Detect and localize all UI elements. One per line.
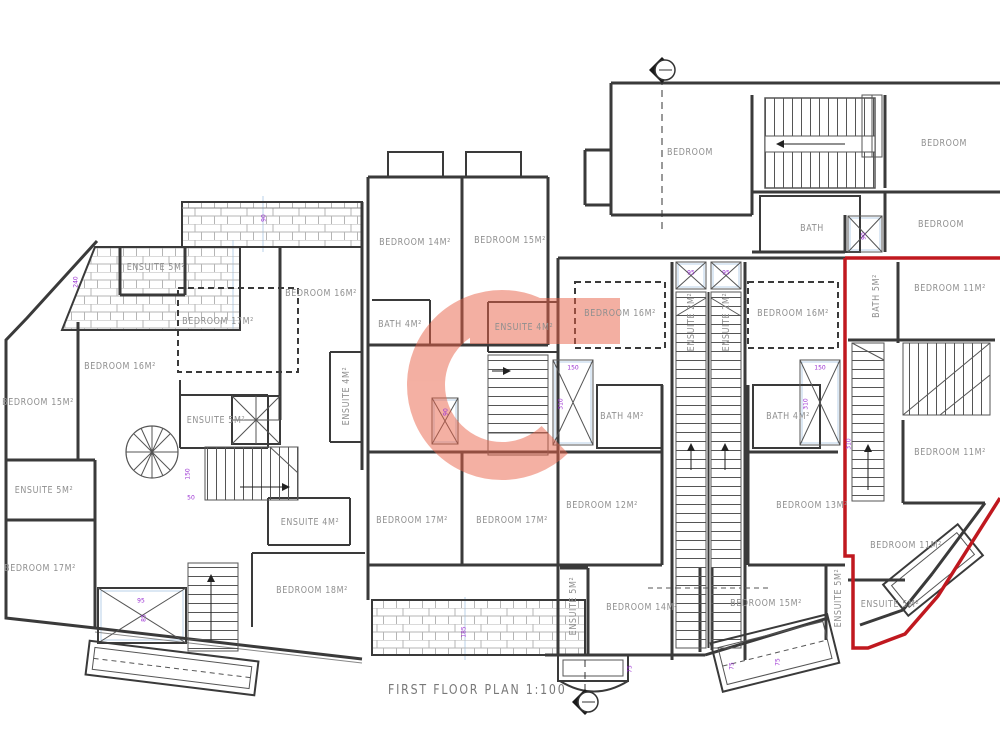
top-right-block [585, 83, 1000, 340]
dimension-label: 95 [687, 270, 695, 277]
room-label: BEDROOM [921, 138, 967, 149]
room-label: BEDROOM 11M² [914, 283, 986, 294]
room-label: ENSUITE 5M² [187, 415, 246, 426]
room-label: ENSUITE 4M² [281, 517, 340, 528]
floor-plan-canvas: BEDROOMBEDROOMBEDROOMBATHBATH 5M²BEDROOM… [0, 0, 1000, 750]
room-label: BATH 4M² [766, 411, 810, 422]
dimension-label: 75 [627, 665, 634, 673]
room-label: ENSUITE 2M² [721, 293, 732, 352]
room-label: ENSUITE 5M² [568, 577, 579, 636]
dimension-label: 150 [185, 468, 192, 479]
room-label: BEDROOM 13M² [776, 500, 848, 511]
section-marker-icon [572, 689, 598, 715]
room-label: BEDROOM [918, 219, 964, 230]
room-label: BEDROOM 14M² [379, 237, 451, 248]
dimension-label: 310 [846, 438, 853, 449]
dimension-label: 150 [567, 365, 578, 372]
room-label: ENSUITE 4M² [495, 322, 554, 333]
dimension-label: 90 [443, 408, 450, 416]
dimension-label: 85 [141, 614, 148, 622]
room-label: BEDROOM 16M² [84, 361, 156, 372]
section-marker-icon [649, 57, 675, 83]
room-label: BEDROOM 17M² [182, 316, 254, 327]
dimension-label: 185 [461, 626, 468, 637]
room-label: BEDROOM 15M² [474, 235, 546, 246]
dimension-label: 90 [861, 232, 868, 240]
room-label: ENSUITE 4M² [341, 367, 352, 426]
room-label: BEDROOM 16M² [757, 308, 829, 319]
room-label: ENSUITE 5M² [15, 485, 74, 496]
plan-title: FIRST FLOOR PLAN 1:100 [388, 682, 567, 698]
room-label: BATH [800, 223, 824, 234]
room-label: BEDROOM 16M² [584, 308, 656, 319]
room-label: BEDROOM 16M² [285, 288, 357, 299]
dimension-label: 95 [137, 598, 145, 605]
dimension-label: 310 [803, 398, 810, 409]
dimension-label: 150 [814, 365, 825, 372]
room-label: BEDROOM 15M² [2, 397, 74, 408]
dimension-label: 310 [558, 398, 565, 409]
room-label: ENSUITE 2M² [686, 293, 697, 352]
floor-plan-drawing [0, 0, 1000, 750]
dimension-label: 90 [261, 214, 268, 222]
room-label: BEDROOM 11M² [914, 447, 986, 458]
room-label: ENSUITE 5M² [127, 262, 186, 273]
dimension-label: 75 [775, 658, 782, 666]
room-label: BATH 4M² [378, 319, 422, 330]
dimension-label: 75 [729, 662, 736, 670]
room-label: ENSUITE 5M² [833, 569, 844, 628]
room-label: ENSUITE 5M² [861, 599, 920, 610]
middle-cluster-walls [368, 152, 558, 655]
room-label: BEDROOM 15M² [730, 598, 802, 609]
room-label: BEDROOM 17M² [476, 515, 548, 526]
room-label: BEDROOM 14M² [606, 602, 678, 613]
room-label: BATH 5M² [871, 274, 882, 318]
room-label: BEDROOM 18M² [276, 585, 348, 596]
room-label: BATH 4M² [600, 411, 644, 422]
dimension-label: 50 [187, 495, 195, 502]
dimension-label: 95 [722, 270, 730, 277]
red-unit-interior [848, 262, 990, 625]
room-label: BEDROOM [667, 147, 713, 158]
dimension-label: 240 [73, 276, 80, 287]
room-label: BEDROOM 17M² [4, 563, 76, 574]
room-label: BEDROOM 11M² [870, 540, 942, 551]
room-label: BEDROOM 12M² [566, 500, 638, 511]
room-label: BEDROOM 17M² [376, 515, 448, 526]
